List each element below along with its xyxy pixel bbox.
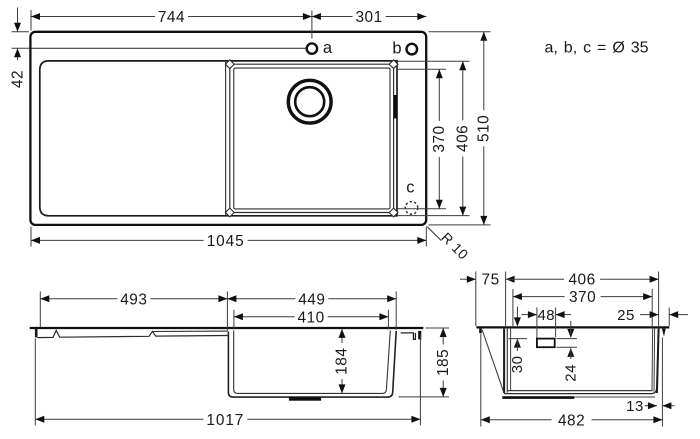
svg-text:744: 744 [158, 9, 185, 26]
svg-text:406: 406 [455, 125, 472, 152]
svg-text:370: 370 [569, 289, 596, 306]
svg-text:482: 482 [558, 412, 585, 429]
svg-text:185: 185 [435, 349, 452, 376]
svg-text:410: 410 [298, 309, 325, 326]
svg-text:24: 24 [563, 364, 580, 382]
svg-text:42: 42 [10, 70, 27, 88]
svg-text:a, b, c = Ø 35: a, b, c = Ø 35 [545, 39, 649, 56]
svg-text:75: 75 [482, 271, 500, 288]
svg-text:493: 493 [120, 291, 147, 308]
svg-text:13: 13 [626, 398, 644, 415]
svg-text:510: 510 [476, 115, 493, 142]
svg-text:406: 406 [569, 271, 596, 288]
svg-text:1017: 1017 [206, 412, 244, 429]
svg-text:301: 301 [356, 9, 383, 26]
svg-text:48: 48 [537, 307, 555, 324]
svg-text:30: 30 [509, 356, 526, 374]
svg-text:370: 370 [431, 125, 448, 152]
svg-text:a: a [323, 39, 333, 57]
svg-text:449: 449 [298, 291, 325, 308]
svg-text:1045: 1045 [207, 233, 245, 250]
svg-text:25: 25 [617, 307, 635, 324]
svg-text:c: c [406, 179, 414, 197]
svg-text:b: b [392, 39, 401, 57]
svg-text:184: 184 [334, 348, 351, 375]
